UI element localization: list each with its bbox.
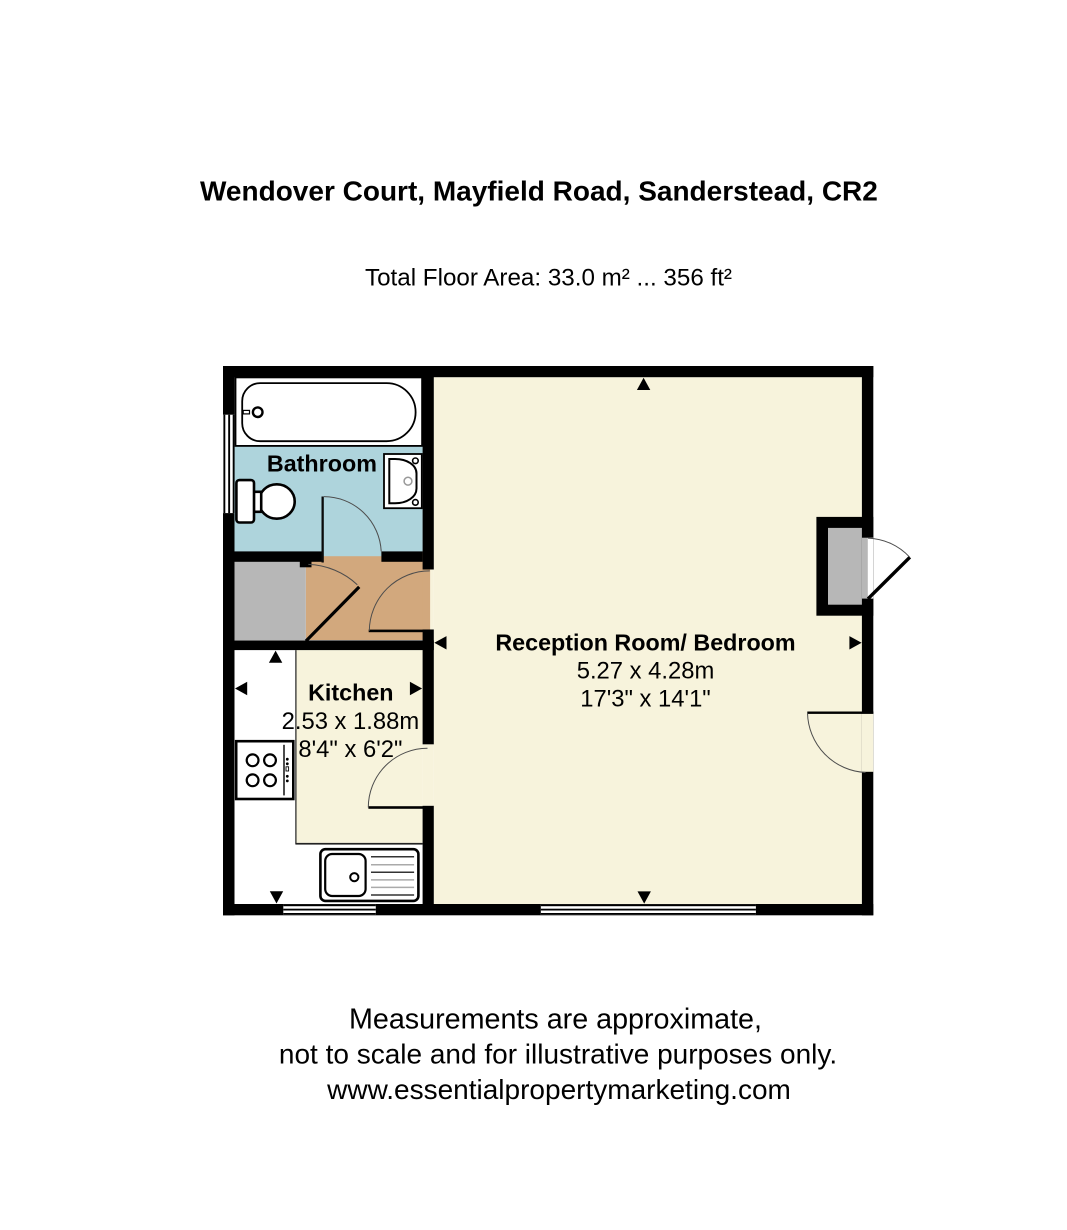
svg-text:www.essentialpropertymarketing: www.essentialpropertymarketing.com [326,1074,791,1105]
svg-text:Wendover Court, Mayfield Road,: Wendover Court, Mayfield Road, Sanderste… [200,175,878,206]
svg-text:Reception Room/ Bedroom: Reception Room/ Bedroom [495,629,795,655]
svg-text:Bathroom: Bathroom [267,451,377,477]
svg-text:5.27 x 4.28m: 5.27 x 4.28m [577,658,715,685]
svg-text:2.53 x 1.88m: 2.53 x 1.88m [282,708,420,735]
svg-text:Kitchen: Kitchen [308,679,393,705]
svg-text:8'4" x 6'2": 8'4" x 6'2" [298,736,402,763]
svg-text:17'3" x 14'1": 17'3" x 14'1" [580,685,711,712]
svg-text:Measurements are approximate,: Measurements are approximate, [349,1004,762,1036]
svg-text:Total Floor Area: 33.0 m² ...: Total Floor Area: 33.0 m² ... 356 ft² [365,264,732,291]
svg-text:not to scale and for illustrat: not to scale and for illustrative purpos… [279,1039,837,1070]
